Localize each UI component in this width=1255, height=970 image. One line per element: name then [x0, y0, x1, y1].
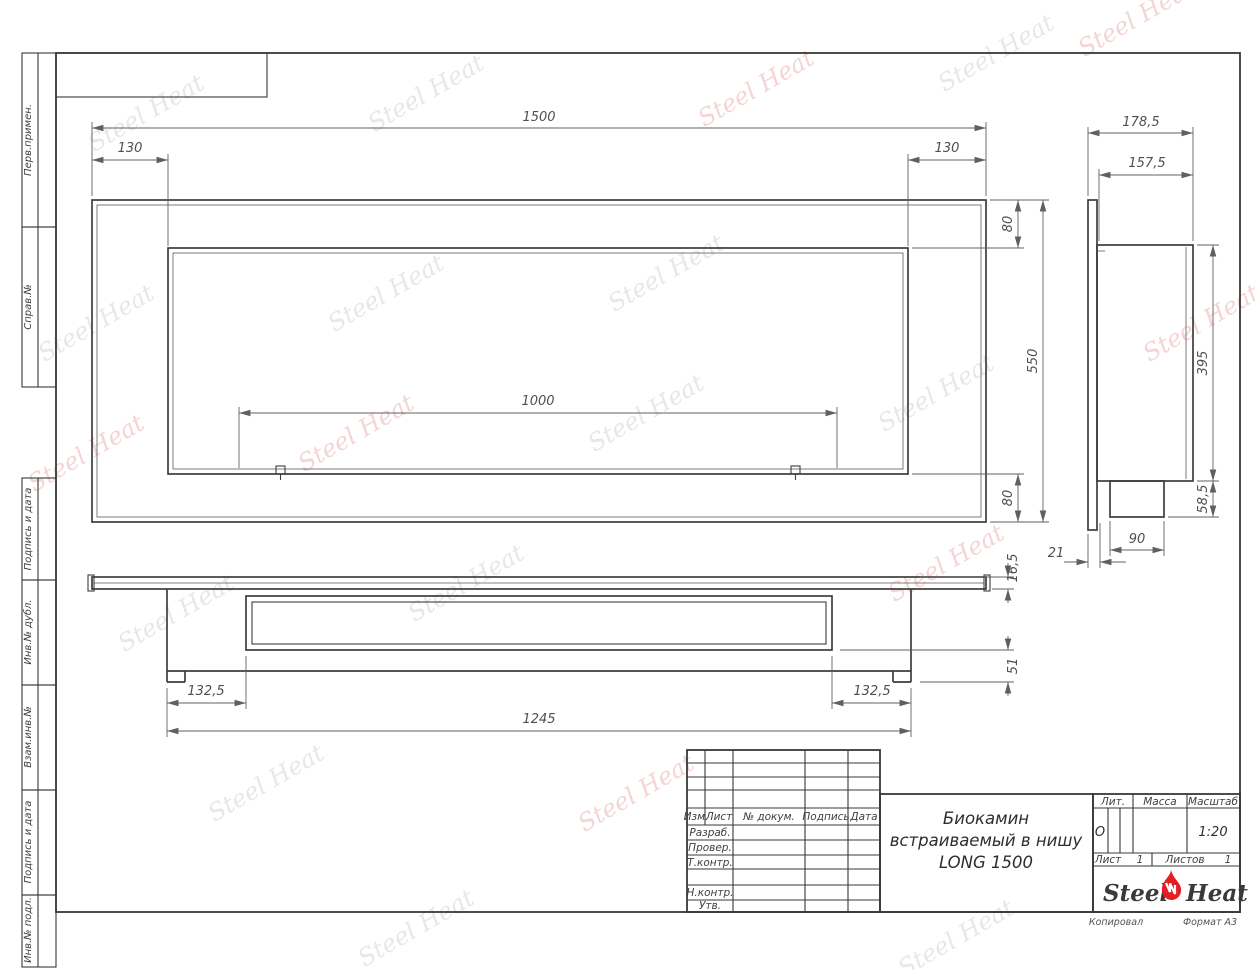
logo-heat: Heat [1185, 880, 1248, 907]
copied-label: Копировал [1089, 917, 1143, 928]
watermark: Steel Heat [603, 229, 729, 318]
scale-value: 1:20 [1198, 825, 1227, 840]
stamp-label: Инв.№ подл. [23, 897, 34, 963]
logo: Steel Heat [1103, 870, 1248, 907]
clip-right [791, 466, 800, 480]
doc-title-line2: встраиваемый в нишу [890, 831, 1083, 850]
flame-icon [1162, 870, 1181, 900]
dim-front-offset-left: 130 [118, 141, 143, 156]
watermark: Steel Heat [323, 249, 449, 338]
watermark: Steel Heat [203, 739, 329, 828]
row-prover: Провер. [688, 842, 732, 854]
watermark: Steel Heat [363, 49, 489, 138]
watermark: Steel Heat [33, 279, 159, 368]
margin-stamp-column: Перв.примен. Справ.№ Подпись и дата Инв.… [22, 53, 56, 967]
stamp-label: Справ.№ [23, 284, 34, 329]
col-doc: № докум. [742, 811, 795, 823]
watermark: Steel Heat [353, 884, 479, 970]
sheets-value: 1 [1225, 854, 1232, 866]
side-view [1088, 200, 1193, 530]
doc-title-line3: LONG 1500 [939, 853, 1033, 872]
watermark: Steel Heat [573, 749, 699, 838]
dim-front-top: 80 [1001, 216, 1016, 233]
stamp-label: Подпись и дата [23, 488, 34, 571]
row-razrab: Разраб. [689, 827, 730, 839]
front-view-dimensions: 1500 130 130 1000 80 550 80 [92, 110, 1049, 522]
watermark-layer: Steel Heat Steel Heat Steel Heat Steel H… [23, 0, 1255, 970]
watermark: Steel Heat [23, 409, 149, 498]
sheet-label: Лист [1094, 854, 1122, 866]
stamp-label: Перв.примен. [23, 104, 34, 176]
col-date: Дата [849, 811, 877, 823]
watermark: Steel Heat [113, 569, 239, 658]
format-label: Формат А3 [1183, 917, 1237, 928]
watermark: Steel Heat [83, 69, 209, 158]
dim-bottom-foot-height: 51 [1006, 658, 1021, 675]
clip-left [276, 466, 285, 480]
dim-bottom-flange-thickness: 16,5 [1006, 554, 1021, 583]
dim-side-body-height: 395 [1196, 351, 1211, 376]
lit-label: Лит. [1100, 796, 1125, 808]
front-view [92, 200, 986, 522]
dim-front-bottom: 80 [1001, 490, 1016, 507]
sheets-label: Листов [1164, 854, 1204, 866]
col-izm: Изм. [684, 811, 709, 823]
title-block: Изм. Лист № докум. Подпись Дата Разраб. … [684, 750, 1249, 912]
dim-bottom-body-width: 1245 [522, 712, 555, 727]
scale-label: Масштаб [1188, 796, 1238, 808]
dim-front-total: 1500 [522, 110, 555, 125]
watermark: Steel Heat [893, 894, 1019, 970]
col-sign: Подпись [802, 811, 849, 823]
watermark: Steel Heat [693, 44, 819, 133]
dim-side-burner-width: 90 [1129, 532, 1146, 547]
row-nkontr: Н.контр. [687, 887, 734, 899]
dim-side-depth-total: 178,5 [1122, 115, 1159, 130]
dim-side-flange-offset: 21 [1048, 546, 1065, 561]
stamp-label: Подпись и дата [23, 801, 34, 884]
dim-side-depth-body: 157,5 [1128, 156, 1165, 171]
watermark: Steel Heat [883, 519, 1009, 608]
dim-front-offset-right: 130 [935, 141, 960, 156]
mass-label: Масса [1143, 796, 1176, 808]
row-tkontr: Т.контр. [687, 857, 733, 869]
watermark: Steel Heat [293, 389, 419, 478]
watermark: Steel Heat [873, 349, 999, 438]
sheet-value: 1 [1137, 854, 1144, 866]
dim-front-burner: 1000 [521, 394, 554, 409]
stamp-label: Инв.№ дубл. [22, 599, 34, 664]
row-utv: Утв. [699, 900, 721, 912]
dim-bottom-inset-left: 132,5 [187, 684, 224, 699]
dim-front-height: 550 [1026, 349, 1041, 374]
frame-footer: Копировал Формат А3 [1089, 917, 1237, 928]
dim-side-burner-drop: 58,5 [1196, 485, 1211, 514]
logo-steel: Steel [1103, 880, 1169, 907]
lit-value: О [1095, 825, 1105, 840]
dim-bottom-inset-right: 132,5 [853, 684, 890, 699]
stamp-label: Взам.инв.№ [23, 706, 34, 768]
col-list: Лист [705, 811, 733, 823]
doc-title-line1: Биокамин [943, 809, 1029, 828]
drawing-canvas: Steel Heat Steel Heat Steel Heat Steel H… [0, 0, 1255, 970]
drawing-sheet: Steel Heat Steel Heat Steel Heat Steel H… [0, 0, 1255, 970]
